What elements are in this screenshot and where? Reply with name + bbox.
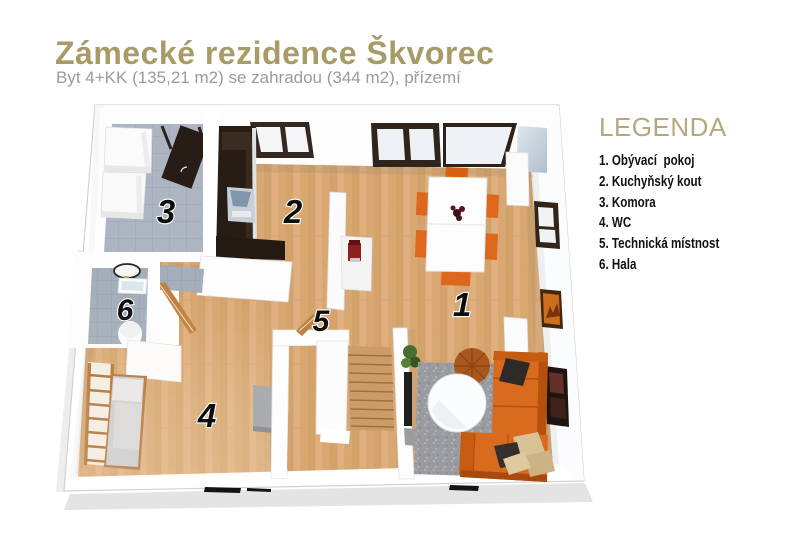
svg-text:5: 5 [313, 305, 331, 338]
svg-text:4: 4 [197, 397, 216, 434]
svg-text:2: 2 [283, 193, 303, 230]
svg-text:3: 3 [157, 193, 175, 230]
svg-text:1: 1 [453, 286, 471, 323]
